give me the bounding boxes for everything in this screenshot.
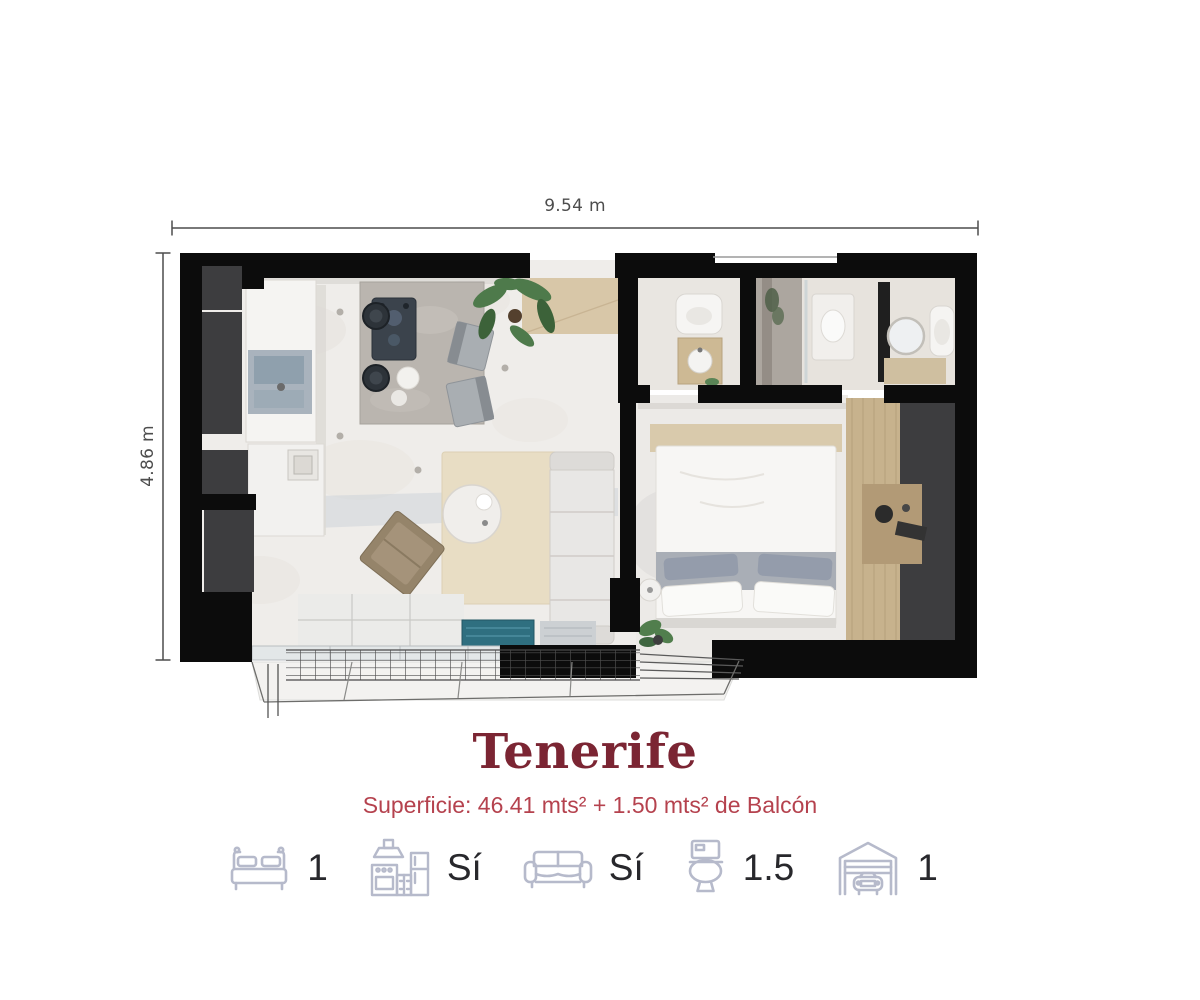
dining-chair [446,376,494,427]
feature-bathrooms: 1.5 [684,838,794,898]
toilet-icon [684,838,728,898]
feature-value: Sí [609,849,644,886]
feature-parking: 1 [834,839,938,897]
feature-bedrooms: 1 [226,843,328,893]
unit-title: Tenerife [0,724,1185,780]
kitchen-icon [368,837,432,899]
feature-value: Sí [447,849,482,886]
sofa-icon [522,844,594,892]
mirror [888,318,924,354]
sofa [550,452,614,644]
bed-icon [226,843,292,893]
desk-nook [862,484,922,564]
floor-plan-page: 9.54 m 4.86 m [0,0,1200,1000]
floor-plan-image [140,185,1020,730]
feature-row: 1 Sí [0,830,1182,905]
door-mat-2 [540,621,596,647]
door-mat [462,620,534,648]
bed [656,446,836,628]
feature-value: 1 [917,849,938,886]
bedroom-area [626,398,955,662]
unit-surface-subtitle: Superficie: 46.41 mts² + 1.50 mts² de Ba… [0,792,1190,819]
bathroom-1 [676,294,722,386]
coffee-table [443,485,501,543]
sink [688,349,712,373]
feature-value: 1 [307,849,328,886]
feature-kitchen: Sí [368,837,482,899]
kitchen-faucet [277,383,285,391]
bath-counter [884,358,946,384]
feature-value: 1.5 [743,849,794,886]
garage-icon [834,839,902,897]
feature-living: Sí [522,844,644,892]
